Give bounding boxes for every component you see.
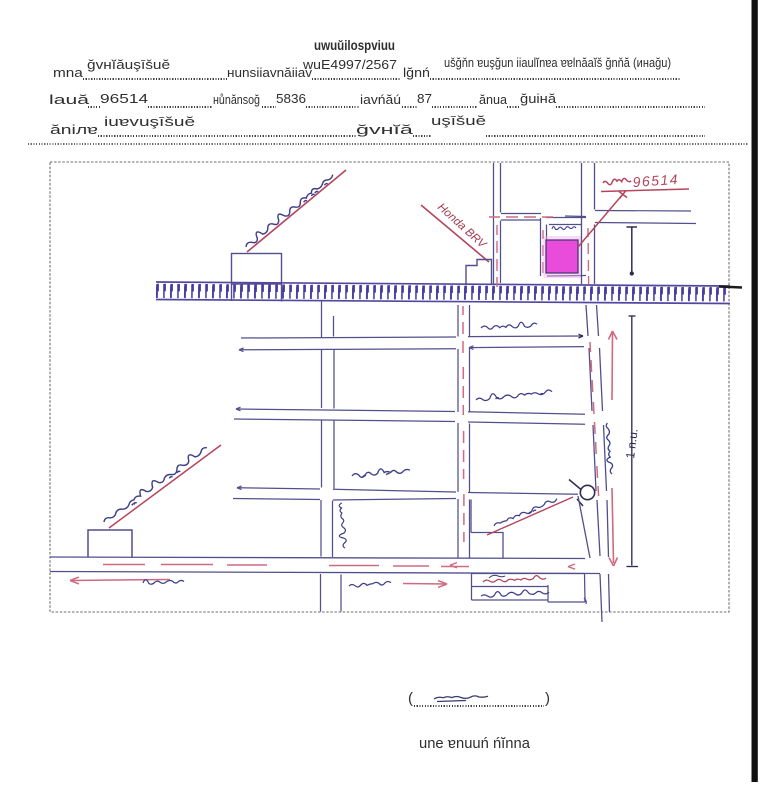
svg-text:Honda BRV: Honda BRV <box>435 201 489 251</box>
svg-text:96514: 96514 <box>632 171 679 190</box>
